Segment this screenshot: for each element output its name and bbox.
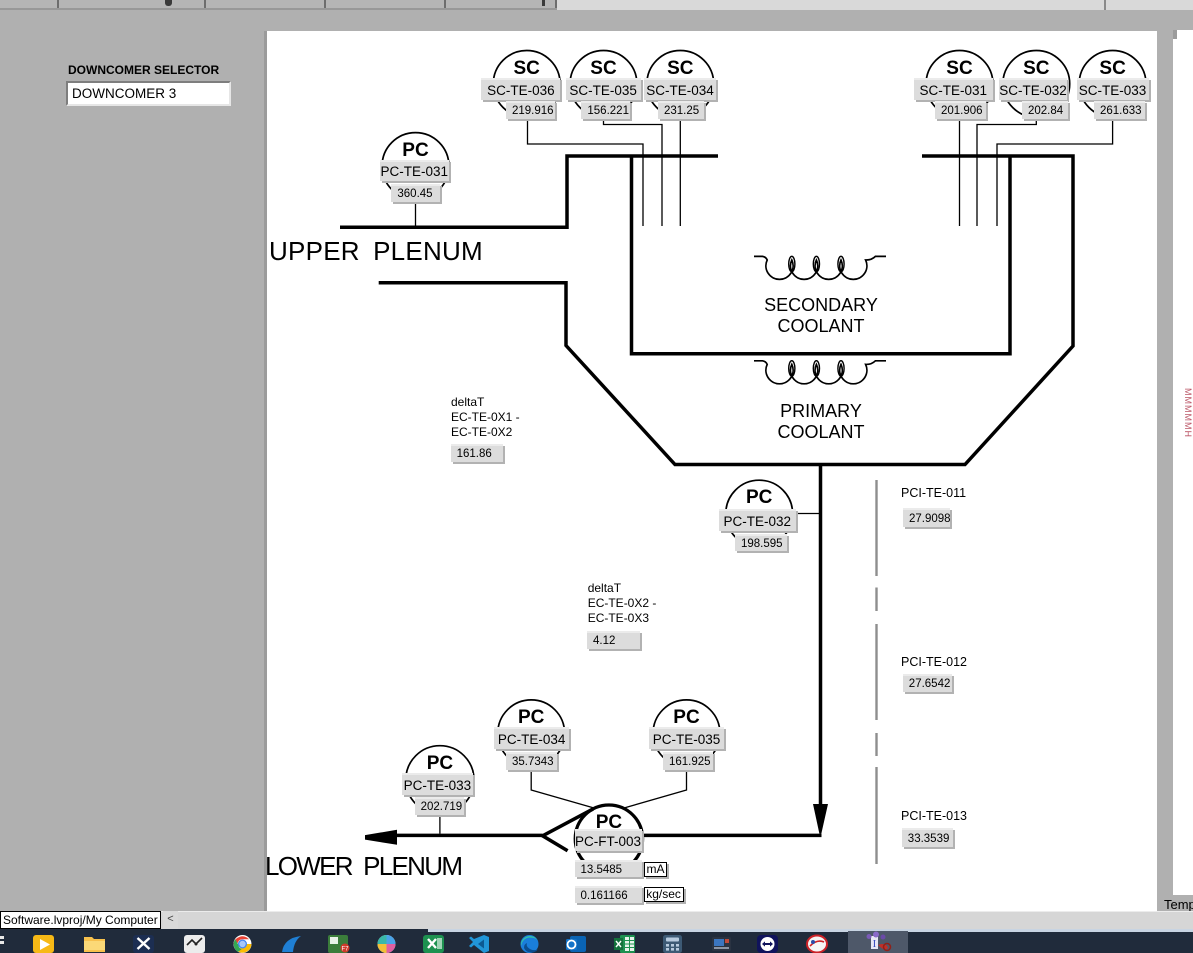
svg-text:F7: F7 bbox=[341, 947, 349, 953]
svg-text:I: I bbox=[873, 938, 877, 950]
